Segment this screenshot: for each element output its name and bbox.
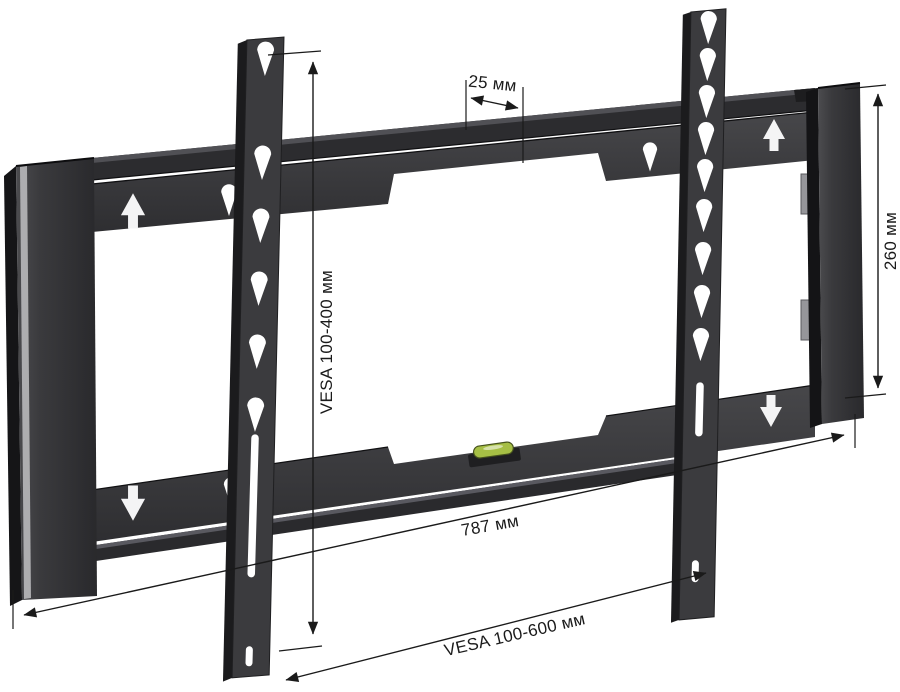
- dimension-label: 25 мм: [467, 72, 517, 96]
- dimension-label: VESA 100-400 мм: [317, 270, 336, 414]
- strap-slot: [691, 560, 699, 582]
- wall-mount-diagram: 25 мм VESA 100-400 мм 260 мм 787 мм VESA…: [0, 0, 900, 692]
- left-vesa-strap: [220, 36, 287, 683]
- dimension-label: 260 мм: [881, 212, 900, 270]
- strap-slot: [245, 646, 253, 666]
- strap-slot: [695, 382, 704, 436]
- dimension-label: 787 мм: [460, 511, 521, 540]
- right-vesa-strap: [668, 8, 729, 624]
- dimension-vesa-horizontal: VESA 100-600 мм: [286, 573, 706, 680]
- product-diagram-canvas: 25 мм VESA 100-400 мм 260 мм 787 мм VESA…: [0, 0, 900, 692]
- left-end-cover: [4, 158, 97, 606]
